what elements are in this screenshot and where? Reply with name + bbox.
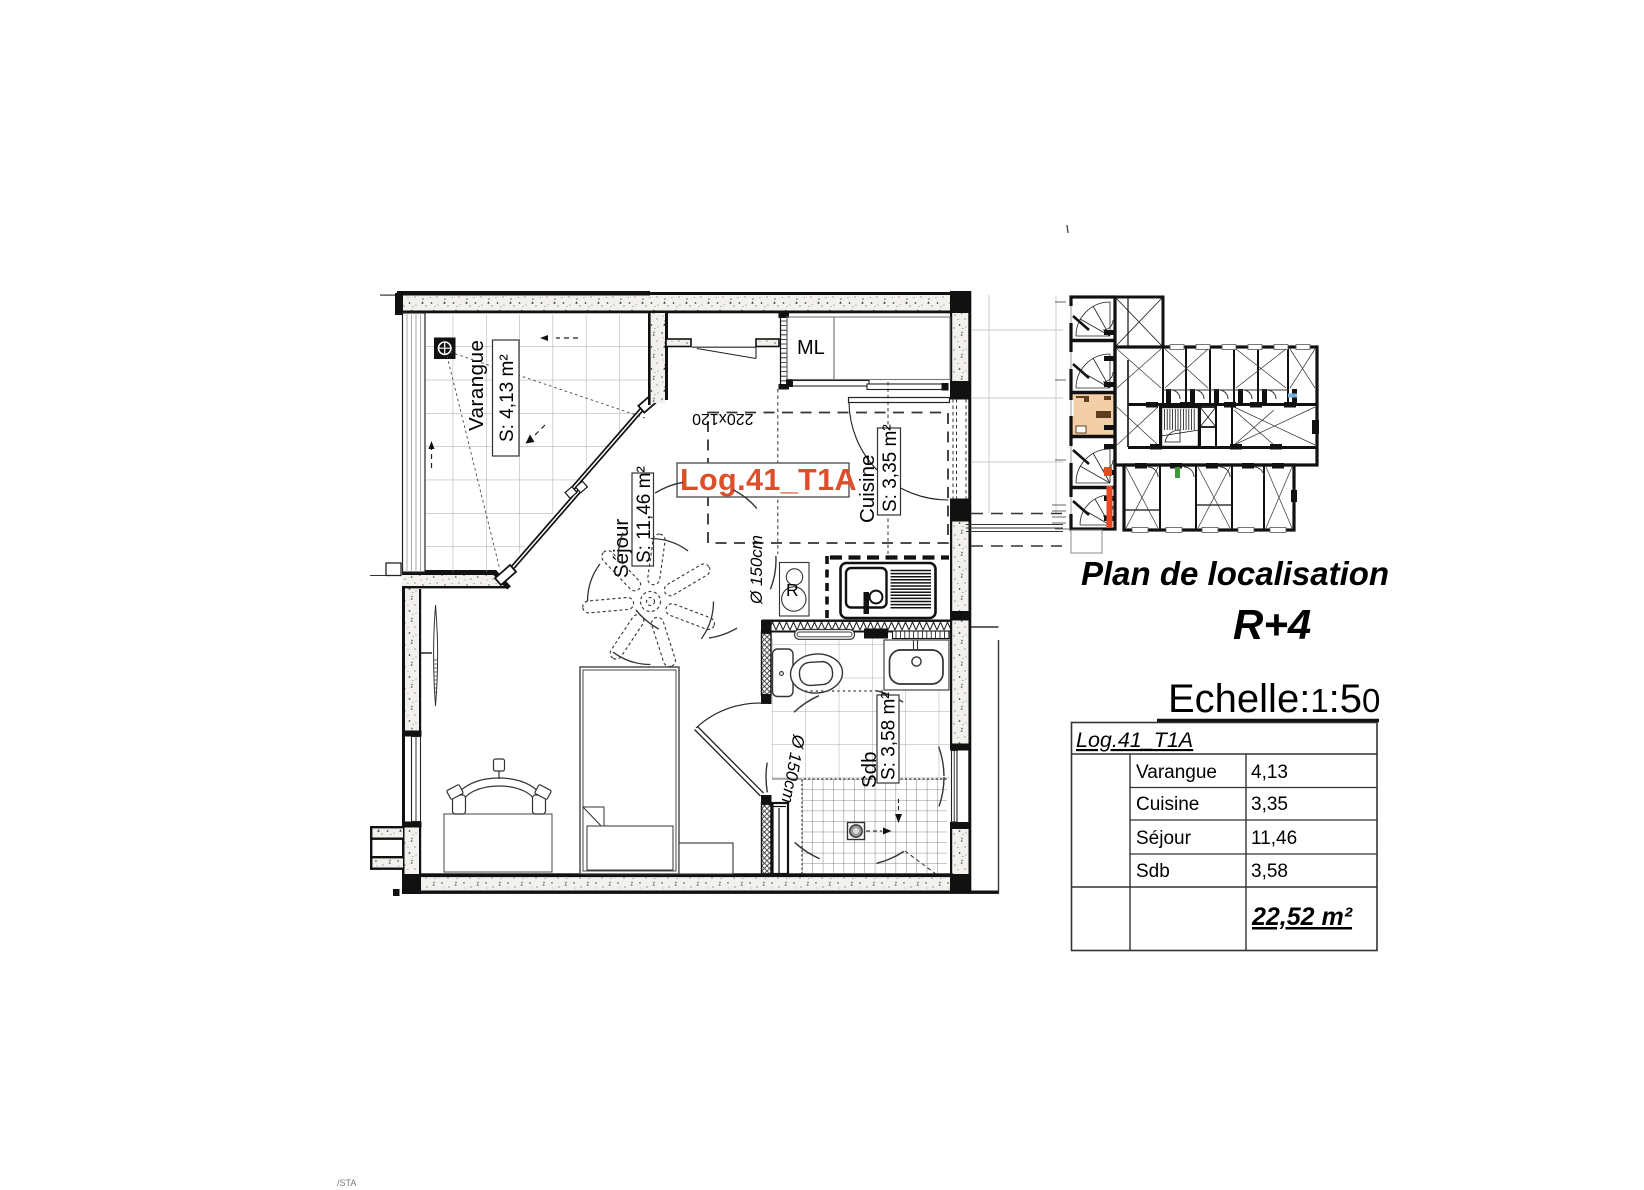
svg-text:Cuisine: Cuisine [856,455,879,523]
svg-text:R+4: R+4 [1233,601,1311,648]
svg-text:220x120: 220x120 [692,410,753,427]
svg-text:11,46: 11,46 [1251,828,1297,849]
svg-text:Ø 150cm: Ø 150cm [747,535,766,605]
svg-text:Log.41_T1A: Log.41_T1A [680,463,857,497]
svg-text:S: 3,58 m²: S: 3,58 m² [879,692,900,780]
svg-text:22,52 m²: 22,52 m² [1251,903,1353,931]
svg-text:Cuisine: Cuisine [1136,794,1199,815]
svg-text:/STA: /STA [337,1178,356,1188]
svg-text:Plan de localisation: Plan de localisation [1081,555,1389,592]
svg-text:Sdb: Sdb [1136,861,1170,882]
svg-text:ML: ML [797,337,825,359]
svg-text:Varangue: Varangue [465,340,488,431]
svg-text:4,13: 4,13 [1251,762,1288,783]
svg-text:S: 3,35 m²: S: 3,35 m² [880,424,901,512]
svg-text:Séjour: Séjour [1136,828,1192,849]
svg-text:3,35: 3,35 [1251,794,1288,815]
svg-text:S: 4,13 m²: S: 4,13 m² [497,354,518,442]
svg-text:R: R [786,580,799,600]
svg-text:Séjour: Séjour [610,519,633,578]
svg-text:Echelle:1:50: Echelle:1:50 [1168,677,1380,721]
svg-text:3,58: 3,58 [1251,861,1288,882]
svg-text:Log.41_T1A: Log.41_T1A [1076,728,1193,752]
svg-text:Varangue: Varangue [1136,762,1217,783]
